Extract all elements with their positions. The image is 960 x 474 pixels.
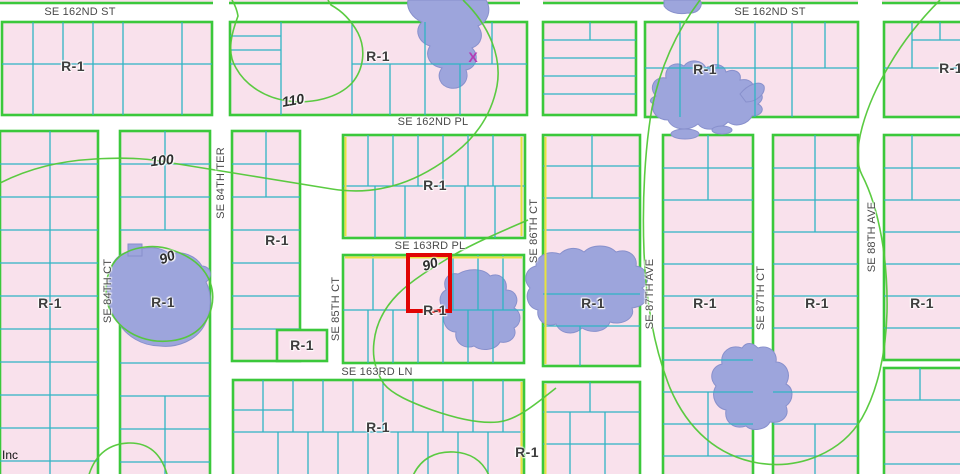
parcel-map[interactable]: SE 162ND ST SE 162ND ST SE 162ND PL SE 1…: [0, 0, 960, 474]
map-canvas[interactable]: [0, 0, 960, 474]
street-label-se-85th-ct: SE 85TH CT: [330, 277, 342, 341]
zone-label: R-1: [515, 444, 539, 460]
street-label-se-84th-ter: SE 84TH TER: [215, 147, 227, 219]
street-label-se-163rd-pl: SE 163RD PL: [395, 240, 466, 252]
street-label-se-162nd-pl: SE 162ND PL: [398, 116, 469, 128]
street-label-se-162nd-st-west: SE 162ND ST: [44, 6, 115, 18]
zone-label: R-1: [693, 61, 717, 77]
zone-label: R-1: [423, 177, 447, 193]
zone-label: R-1: [366, 419, 390, 435]
water-topright-bit2: [671, 129, 699, 139]
water-topright-bit3: [712, 126, 732, 134]
zone-label: R-1: [581, 295, 605, 311]
zone-label: R-1: [693, 295, 717, 311]
zone-label: R-1: [910, 295, 934, 311]
contour-label-100: 100: [150, 151, 175, 169]
street-label-se-84th-ct: SE 84TH CT: [102, 259, 114, 323]
zone-label: R-1: [61, 58, 85, 74]
street-label-se-86th-ct: SE 86TH CT: [528, 199, 540, 263]
zone-label: R-1: [366, 48, 390, 64]
street-label-se-88th-ave: SE 88TH AVE: [866, 202, 878, 272]
street-label-se-162nd-st-east: SE 162ND ST: [734, 6, 805, 18]
street-label-se-87th-ct: SE 87TH CT: [755, 266, 767, 330]
zone-label: R-1: [423, 302, 447, 318]
zone-label: R-1: [805, 295, 829, 311]
map-credit: Inc: [2, 448, 18, 462]
zone-label: R-1: [151, 294, 175, 310]
zone-label: R-1: [290, 337, 314, 353]
zone-label: R-1: [265, 232, 289, 248]
zone-label: R-1: [38, 295, 62, 311]
x-point-marker: X: [468, 49, 477, 65]
zone-label: R-1: [939, 60, 960, 76]
street-label-se-163rd-ln: SE 163RD LN: [341, 366, 412, 378]
street-label-se-87th-ave: SE 87TH AVE: [644, 259, 656, 329]
